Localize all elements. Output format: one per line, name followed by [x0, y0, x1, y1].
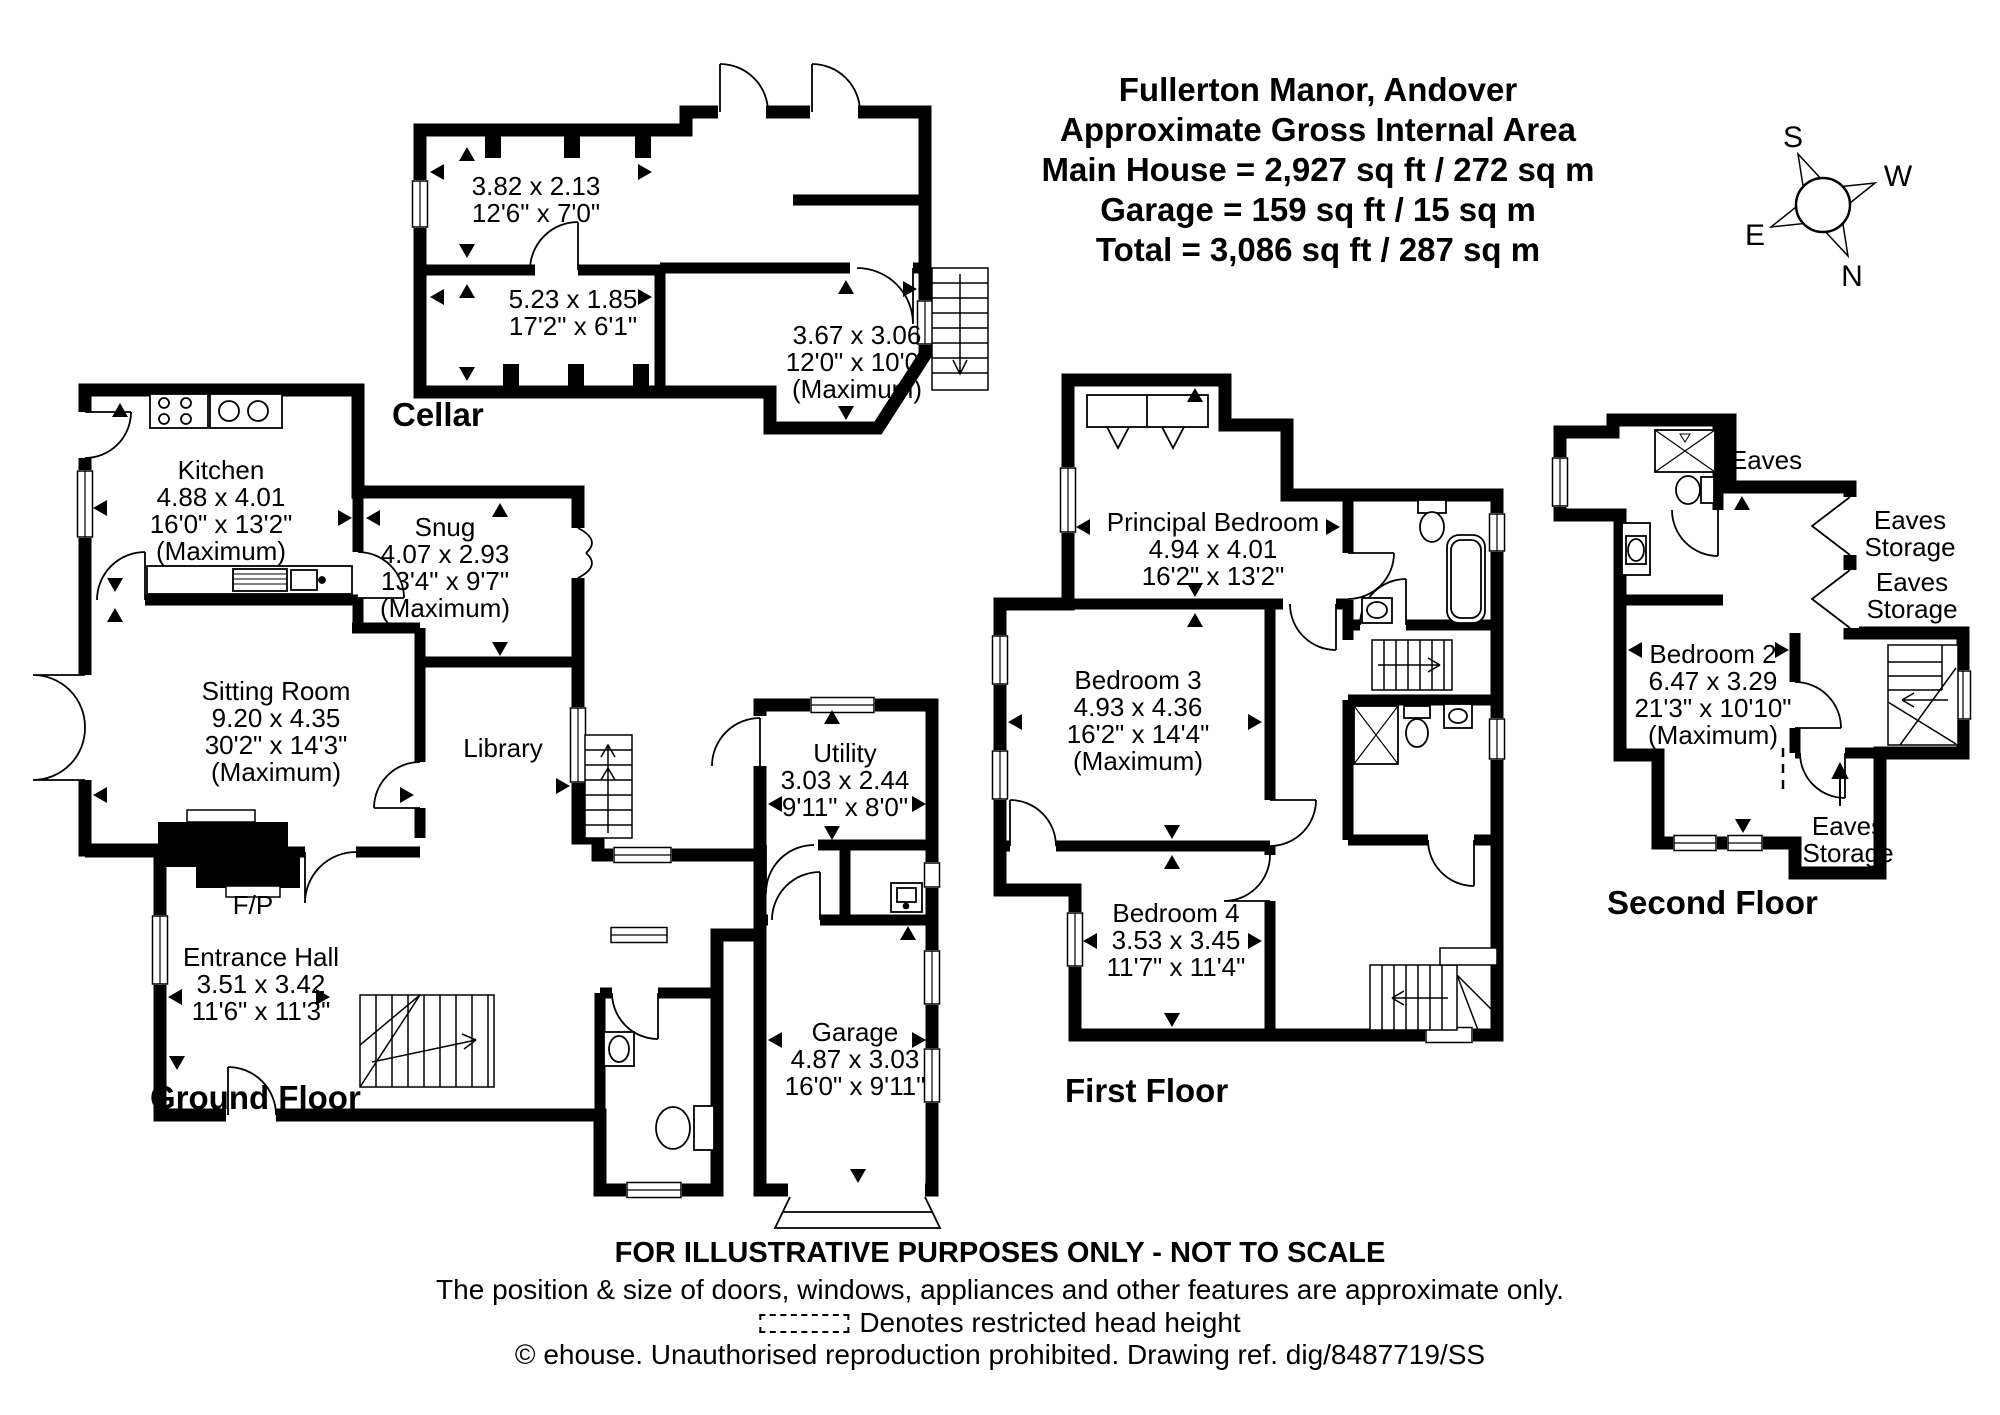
floor-title-ground: Ground Floor: [150, 1079, 361, 1117]
floor-title-cellar: Cellar: [392, 396, 484, 434]
compass-icon: [1771, 154, 1875, 256]
room-label-bedroom4: Bedroom 4 3.53 x 3.45 11'7" x 11'4": [1107, 900, 1246, 981]
garage-area: Garage = 159 sq ft / 15 sq m: [1042, 190, 1595, 230]
cellar-stairs-icon: [932, 268, 988, 390]
room-label-utility: Utility 3.03 x 2.44 9'11" x 8'0": [781, 740, 910, 821]
second-shower-icon: [1655, 430, 1715, 472]
boiler-icon: [891, 883, 922, 912]
room-label-fireplace: F/P: [233, 892, 273, 919]
annotation-eaves: Eaves: [1730, 447, 1802, 474]
kitchen-hob-icon: [150, 394, 282, 428]
second-toilet-icon: [1676, 476, 1714, 504]
total-area: Total = 3,086 sq ft / 287 sq m: [1042, 230, 1595, 270]
annotation-eaves-storage-2: Eaves Storage: [1866, 569, 1957, 623]
compass-east-label: E: [1745, 219, 1765, 253]
library-ext-stairs-icon: [585, 735, 632, 838]
room-label-entrance-hall: Entrance Hall 3.51 x 3.42 11'6" x 11'3": [183, 944, 339, 1025]
footer-legend: Denotes restricted head height: [759, 1307, 1240, 1339]
second-sink-icon: [1622, 523, 1650, 575]
footer-approximate-note: The position & size of doors, windows, a…: [436, 1274, 1564, 1306]
ensuite-toilet-icon: [1404, 706, 1430, 747]
wc-sink-icon: [604, 1032, 634, 1066]
second-stairs-icon: [1888, 645, 1958, 745]
annotation-eaves-storage-1: Eaves Storage: [1864, 507, 1955, 561]
room-label-garage: Garage 4.87 x 3.03 16'0" x 9'11": [785, 1019, 926, 1100]
bathroom-bath-icon: [1447, 535, 1485, 623]
title-block: Fullerton Manor, Andover Approximate Gro…: [1042, 70, 1595, 270]
compass-west-label: W: [1884, 160, 1912, 194]
main-stairs-icon: [360, 995, 494, 1087]
room-label-cellar-store3: 3.67 x 3.06 12'0" x 10'0" (Maximum): [786, 322, 929, 403]
floor-title-first: First Floor: [1065, 1072, 1228, 1110]
garage-door-icon: [775, 1197, 940, 1228]
kitchen-sink-icon: [147, 566, 352, 594]
room-label-library: Library: [463, 735, 542, 762]
room-label-cellar-store2: 5.23 x 1.85 17'2" x 6'1": [509, 286, 638, 340]
restricted-head-height-legend-icon: [759, 1314, 849, 1333]
footer-copyright: © ehouse. Unauthorised reproduction proh…: [515, 1339, 1485, 1371]
annotation-eaves-storage-3: Eaves Storage: [1802, 813, 1893, 867]
wc-toilet-icon: [656, 1106, 714, 1150]
room-label-kitchen: Kitchen 4.88 x 4.01 16'0" x 13'2" (Maxim…: [150, 457, 293, 565]
property-title: Fullerton Manor, Andover: [1042, 70, 1595, 110]
room-label-sitting-room: Sitting Room 9.20 x 4.35 30'2" x 14'3" (…: [202, 678, 351, 786]
ensuite-sink-icon: [1444, 704, 1472, 728]
footer-disclaimer: FOR ILLUSTRATIVE PURPOSES ONLY - NOT TO …: [615, 1237, 1386, 1270]
main-house-area: Main House = 2,927 sq ft / 272 sq m: [1042, 150, 1595, 190]
room-label-bedroom3: Bedroom 3 4.93 x 4.36 16'2" x 14'4" (Max…: [1067, 667, 1210, 775]
floorplan-page: Fullerton Manor, Andover Approximate Gro…: [0, 0, 2000, 1415]
area-subtitle: Approximate Gross Internal Area: [1042, 110, 1595, 150]
room-label-principal-bedroom: Principal Bedroom 4.94 x 4.01 16'2" x 13…: [1107, 509, 1319, 590]
first-mid-stairs-icon: [1372, 640, 1452, 690]
room-label-bedroom2: Bedroom 2 6.47 x 3.29 21'3" x 10'10" (Ma…: [1634, 641, 1791, 749]
compass-north-label: N: [1841, 260, 1863, 294]
room-label-cellar-store1: 3.82 x 2.13 12'6" x 7'0": [472, 173, 601, 227]
room-label-snug: Snug 4.07 x 2.93 13'4" x 9'7" (Maximum): [380, 514, 510, 622]
floor-title-second: Second Floor: [1607, 884, 1818, 922]
compass-south-label: S: [1783, 121, 1803, 155]
bathroom-sink-icon: [1362, 598, 1392, 623]
bathroom-toilet-icon: [1418, 500, 1446, 542]
shower-icon: [1354, 706, 1398, 764]
